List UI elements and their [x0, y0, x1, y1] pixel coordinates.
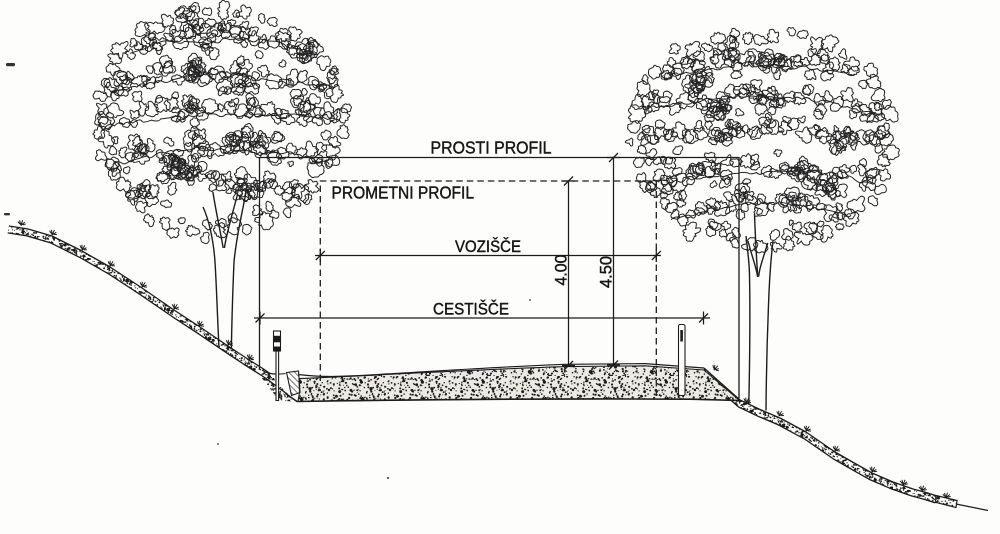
- svg-text:CESTIŠČE: CESTIŠČE: [433, 300, 509, 319]
- svg-text:PROMETNI PROFIL: PROMETNI PROFIL: [332, 183, 475, 203]
- svg-text:VOZIŠČE: VOZIŠČE: [455, 237, 521, 256]
- svg-text:4.50: 4.50: [597, 256, 616, 288]
- svg-text:4.00: 4.00: [552, 255, 571, 286]
- svg-text:PROSTI PROFIL: PROSTI PROFIL: [431, 138, 552, 158]
